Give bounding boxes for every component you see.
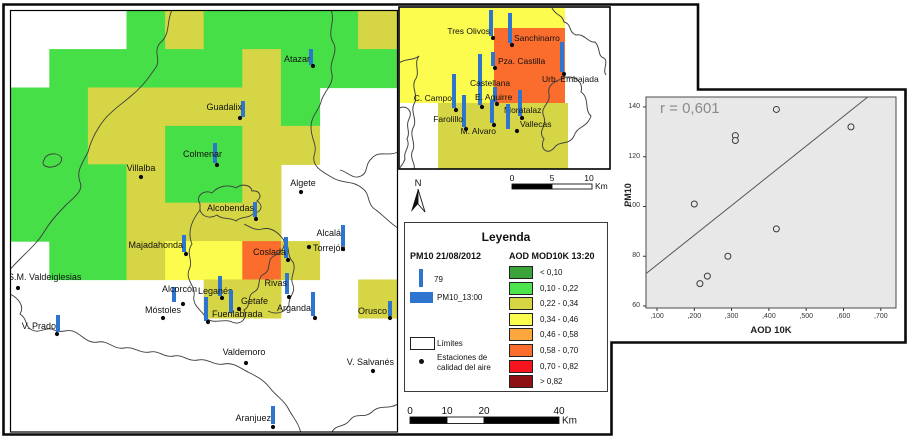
aod-class-swatch (509, 360, 533, 373)
aod-grid-cell (49, 203, 88, 242)
aod-grid-cell (127, 88, 166, 127)
aod-grid-cell (11, 203, 50, 242)
inset-map: Tres OlivosSanchinarroPza. CastillaUrb. … (399, 8, 606, 169)
pm10-bar (560, 42, 564, 72)
aod-grid-cell (88, 241, 127, 280)
pm10-bar (388, 301, 392, 316)
aod-class-swatch (509, 375, 533, 388)
station-dot (480, 105, 484, 109)
station-label: Tres Olivos (447, 26, 490, 36)
scatter-point (773, 106, 779, 112)
pm10-bar (491, 52, 495, 66)
station-label: Getafe (241, 296, 268, 306)
aod-grid-cell (49, 164, 88, 203)
aod-class-row: 0,70 - 0,82 (509, 361, 578, 372)
station-dot (371, 369, 375, 373)
station-label: Coslada (253, 247, 286, 257)
aod-class-swatch (509, 297, 533, 310)
main-map: AtazarGuadalixColmenarVillalbaAlgeteAlco… (8, 10, 398, 442)
station-dot (55, 332, 59, 336)
station-label: Móstoles (145, 305, 182, 315)
pm10-bar (56, 315, 60, 332)
aod-grid-cell (320, 11, 359, 50)
station-dot (254, 217, 258, 221)
aod-grid-cell (11, 88, 50, 127)
scatter-point (732, 138, 738, 144)
station-dot (313, 316, 317, 320)
pm10-bar (506, 104, 510, 129)
station-dot (271, 425, 275, 429)
station-label: Rivas (264, 278, 287, 288)
aod-class-swatch (509, 266, 533, 279)
scale-tick: 5 (550, 173, 555, 183)
station-label: V. Prado (22, 321, 56, 331)
aod-grid-cell (11, 164, 50, 203)
aod-grid-cell (204, 164, 243, 203)
boundary-line (340, 152, 398, 177)
aod-grid-cell (204, 11, 243, 50)
aod-class-row: 0,22 - 0,34 (509, 298, 578, 309)
scatter-plot (643, 97, 896, 311)
pm10-rect-symbol (410, 292, 433, 303)
aod-class-list: < 0,100,10 - 0,220,22 - 0,340,34 - 0,460… (509, 267, 578, 392)
limits-symbol (410, 337, 435, 350)
aod-class-label: > 0,82 (540, 377, 562, 386)
station-label: Colmenar (183, 149, 222, 159)
station-dot (454, 108, 458, 112)
station-dot (287, 295, 291, 299)
station-dot (139, 175, 143, 179)
station-label: Majadahonda (128, 240, 183, 250)
aod-class-label: 0,46 - 0,58 (540, 330, 578, 339)
aod-class-label: 0,22 - 0,34 (540, 299, 578, 308)
station-dot (181, 302, 185, 306)
scatter-point (773, 226, 779, 232)
aod-grid-cell (242, 126, 281, 165)
station-label: Aranjuez (235, 413, 271, 423)
scale-tick: 20 (478, 406, 490, 417)
aod-grid-cell (204, 49, 243, 88)
aod-grid-cell (358, 49, 397, 88)
station-label: Pza. Castilla (498, 56, 546, 66)
aod-grid-cell (165, 11, 204, 50)
legend-panel: Leyenda PM10 21/08/2012 79 PM10_13:00 Lí… (404, 222, 608, 392)
station-label: C. Campo (414, 93, 453, 103)
aod-class-swatch (509, 313, 533, 326)
station-label: Sanchinarro (514, 33, 560, 43)
stations-label-line1: Estaciones de (437, 353, 487, 362)
boundary-line (399, 107, 410, 169)
station-dot (16, 286, 20, 290)
station-label: Orusco (358, 306, 387, 316)
scatter-x-axis-title: AOD 10K (721, 325, 821, 336)
aod-grid-cell (242, 164, 281, 203)
aod-grid-cell (88, 126, 127, 165)
scale-km-label: Km (562, 416, 577, 427)
scatter-point (848, 124, 854, 130)
aod-class-label: 0,10 - 0,22 (540, 284, 578, 293)
aod-grid-cell (127, 49, 166, 88)
pm10-rect-label: PM10_13:00 (437, 293, 482, 302)
aod-grid-cell (204, 241, 243, 280)
aod-grid-cell (281, 11, 320, 50)
aod-class-label: 0,34 - 0,46 (540, 315, 578, 324)
aod-class-row: < 0,10 (509, 267, 578, 278)
pm10-bar (204, 297, 208, 321)
limits-label: Límites (437, 339, 463, 348)
correlation-label: r = 0,601 (660, 100, 720, 117)
station-label: S.M. Valdeiglesias (8, 272, 82, 282)
pm10-bar-symbol (419, 269, 423, 287)
axis-tick-label: 100 (622, 202, 640, 209)
aod-class-label: 0,58 - 0,70 (540, 346, 578, 355)
pm10-bar (508, 13, 512, 43)
scale-bar: 0510Km (510, 173, 608, 191)
station-label: Vallecas (520, 119, 552, 129)
aod-grid-cell (165, 126, 204, 165)
aod-grid-cell (165, 88, 204, 127)
station-label: Castellana (470, 78, 510, 88)
station-label: Torrejón (313, 243, 346, 253)
station-dot (311, 64, 315, 68)
scatter-point (697, 281, 703, 287)
aod-grid-cell (88, 88, 127, 127)
aod-grid-cell (438, 103, 568, 169)
scale-tick: 0 (407, 406, 413, 417)
station-label: Guadalix (206, 102, 242, 112)
station-label: Urb. Embajada (542, 74, 599, 84)
pm10-bar (311, 292, 315, 316)
station-label: Alcalá (316, 228, 341, 238)
aod-grid-cell (49, 88, 88, 127)
scale-tick: 0 (510, 173, 515, 183)
aod-class-row: 0,10 - 0,22 (509, 283, 578, 294)
station-dot (215, 163, 219, 167)
legend-pm10-header: PM10 21/08/2012 (410, 251, 481, 261)
station-dot (244, 361, 248, 365)
station-label: Atazar (284, 54, 310, 64)
station-label: V. Salvanés (347, 357, 395, 367)
station-dot (206, 320, 210, 324)
scatter-point (725, 253, 731, 259)
aod-grid-cell (242, 88, 281, 127)
station-label: Fuenlabrada (212, 309, 263, 319)
station-dot (299, 190, 303, 194)
scatter-point (691, 201, 697, 207)
aod-grid-cell (242, 49, 281, 88)
axis-tick-label: ,600 (831, 313, 857, 320)
station-dot (515, 129, 519, 133)
aod-class-row: > 0,82 (509, 376, 578, 387)
scatter-point (704, 273, 710, 279)
aod-class-swatch (509, 344, 533, 357)
aod-class-swatch (509, 282, 533, 295)
station-dot (220, 296, 224, 300)
station-label: Leganés (198, 286, 233, 296)
station-dot (491, 36, 495, 40)
station-dot (238, 116, 242, 120)
aod-grid-cell (88, 164, 127, 203)
scale-bar: 0102040Km (407, 406, 577, 427)
axis-tick-label: ,300 (719, 313, 745, 320)
pm10-bar (490, 100, 494, 123)
figure-aod-pm10-madrid: AtazarGuadalixColmenarVillalbaAlgeteAlco… (0, 0, 909, 442)
pm10-bar (271, 406, 275, 424)
scatter-plot-area (646, 97, 896, 308)
station-dot (493, 66, 497, 70)
pm10-bar-value: 79 (434, 275, 443, 284)
aod-grid-cell (127, 126, 166, 165)
aod-grid-cell (204, 126, 243, 165)
stations-label-line2: calidad del aire (437, 363, 491, 372)
axis-tick-label: ,700 (868, 313, 894, 320)
axis-tick-label: 120 (622, 153, 640, 160)
legend-title: Leyenda (405, 230, 607, 244)
aod-class-row: 0,58 - 0,70 (509, 345, 578, 356)
station-label: Valdemoro (223, 347, 266, 357)
aod-class-swatch (509, 328, 533, 341)
axis-tick-label: 140 (622, 103, 640, 110)
aod-grid-cell (88, 49, 127, 88)
station-dot (286, 258, 290, 262)
axis-tick-label: ,200 (681, 313, 707, 320)
aod-class-row: 0,46 - 0,58 (509, 329, 578, 340)
aod-grid-cell (242, 11, 281, 50)
scale-tick: 10 (441, 406, 453, 417)
station-dot (307, 245, 311, 249)
station-dot (510, 43, 514, 47)
legend-aod-header: AOD MOD10K 13:20 (509, 251, 595, 261)
station-label: Alcobendas (207, 203, 255, 213)
axis-tick-label: 80 (622, 252, 640, 259)
aod-class-row: 0,34 - 0,46 (509, 314, 578, 325)
station-label: Arganda (277, 303, 311, 313)
north-label: N (415, 178, 422, 189)
aod-class-label: < 0,10 (540, 268, 562, 277)
aod-grid-cell (127, 203, 166, 242)
station-label: Villalba (127, 163, 156, 173)
axis-tick-label: ,400 (756, 313, 782, 320)
station-label: M. Alvaro (461, 126, 497, 136)
axis-tick-label: ,500 (793, 313, 819, 320)
station-dot (184, 252, 188, 256)
pm10-bar (452, 74, 456, 108)
axis-tick-label: 60 (622, 302, 640, 309)
station-label: Alcorcón (162, 284, 197, 294)
boundary-line (330, 404, 398, 442)
aod-grid-cell (49, 126, 88, 165)
aod-grid-cell (358, 11, 397, 50)
axis-tick-label: ,100 (644, 313, 670, 320)
station-dot (388, 316, 392, 320)
station-label: Algete (290, 178, 316, 188)
station-label: Farolillo (433, 114, 463, 124)
aod-grid-cell (88, 203, 127, 242)
station-dot-symbol (419, 359, 424, 364)
aod-grid-cell (320, 49, 359, 88)
aod-grid-cell (281, 88, 320, 127)
scale-tick: 10 (584, 173, 594, 183)
scale-km-label: Km (595, 181, 608, 191)
station-dot (161, 316, 165, 320)
station-dot (495, 102, 499, 106)
north-arrow: N (411, 178, 425, 212)
aod-grid-cell (49, 49, 88, 88)
aod-grid-cell (165, 49, 204, 88)
aod-class-label: 0,70 - 0,82 (540, 362, 578, 371)
